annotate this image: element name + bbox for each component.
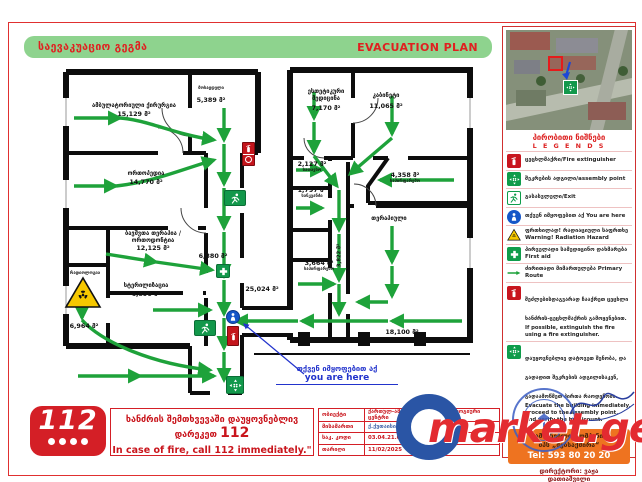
assembly-point-icon [507,345,521,359]
page-title-english: EVACUATION PLAN [357,41,478,54]
instruction-item: შეძლებისდაგვარად ჩააქრეთ ცეცხლი ხანძრის-… [506,282,632,341]
legend-item: შეკრების ადგილი/assembly point [506,170,632,189]
satellite-map [506,30,632,130]
room-label: მოსაცდელი 5,389 მ² [184,86,238,104]
assembly-point-icon [226,376,244,394]
room-label: 6,964 მ² [62,322,106,330]
emergency-service-icons [30,438,106,445]
legend-item: ფრთხილად! რადიაციული საფრთხე Warning! Ra… [506,225,632,244]
map-building [588,102,626,120]
radiation-hazard-icon [64,276,102,310]
fire-call-notice: ხანძრის შემთხვევაში დაუყოვნებლივ დარეკეთ… [110,408,314,456]
plan-info-table: ობიექტი ქართულ-ამერიკული სტომატოლოგიური … [318,408,500,456]
phone-number: Tel: 593 80 20 20 [510,451,628,461]
room-label: ორთოპედია 14,770 მ² [100,171,192,186]
map-arrow [558,60,576,82]
map-building [516,90,546,106]
director-signature-label: დირექტორი: ვაჟა დათიაშვილი [506,467,632,482]
legend-item: ცეცხლმაქრი/Fire extinguisher [506,151,632,170]
room-label: სტერილიზაცია 6,890 მ² [108,283,184,298]
map-building [514,60,540,74]
fire-extinguisher-icon [227,326,239,346]
room-label: 18,100 მ² [378,328,426,336]
room-label: თერაპიული [362,216,416,223]
fire-extinguisher-icon [507,154,521,168]
room-label: ამბულატორიული ქირურგია 15,129 მ² [78,103,190,118]
table-row: მისამართი ქ.ქუთაისი, ი. ახმეტელის №2 [319,421,499,432]
table-row: საკ. კოდი 03.04.21.003 [319,432,499,443]
emergency-number: 112 [220,425,249,441]
corridor-label: 6,880 მ² [192,252,234,260]
you-are-here-icon [226,310,240,324]
exit-icon [224,190,246,206]
map-building [510,32,550,50]
room-label: კაბინეტი 11,065 მ² [360,93,412,110]
header-bar: საევაკუაციო გეგმა EVACUATION PLAN [24,36,492,58]
legend-item: გასასვლელი/Exit [506,188,632,207]
room-label: ბავშვთა თერაპია / ორთოდონტია 12,125 მ² [104,231,202,253]
legend-title: პირობითი ნიშნები L E G E N D S [506,133,632,150]
room-label: 1,797 მ² სანკვანძი [290,186,334,199]
exit-icon [507,191,521,205]
assembly-point-icon [507,172,521,186]
first-aid-icon [507,247,521,261]
map-tree [618,66,628,76]
table-row: თარიღი 11/02/2025 [319,444,499,455]
exit-icon [194,320,216,336]
you-are-here-icon [507,210,521,224]
map-tree [536,76,546,86]
map-marker-assembly [563,80,578,95]
legend-item: ძირითადი მიმართულება Primary Route [506,263,632,282]
signature [566,384,638,426]
you-are-here-note: თქვენ იმყოფებით აქ you are here [276,364,398,385]
legend-item: პირველადი სამედიცინო დახმარება First aid [506,244,632,263]
room-label: ესთეტიკური მედიცინა 7,170 მ² [298,89,354,113]
map-building [556,38,598,53]
corridor-label: 3,822 მ² [337,233,344,277]
fire-extinguisher-icon [242,142,255,166]
room-label: 2,127 მ² სათავსო [290,160,334,173]
table-row: ობიექტი ქართულ-ამერიკული სტომატოლოგიური … [319,409,499,421]
legend-item: თქვენ იმყოფებით აქ You are here [506,207,632,226]
corridor-label: 25,024 მ² [238,285,286,293]
fire-extinguisher-icon [507,286,521,300]
room-label: 4,358 მ² საპირფარეშო [380,171,430,184]
page-title: საევაკუაციო გეგმა [38,41,147,53]
evacuation-plan-page: საევაკუაციო გეგმა EVACUATION PLAN [0,0,642,482]
emergency-112-logo: 112 [30,406,106,456]
first-aid-icon [216,264,230,278]
radiation-hazard-icon [507,228,521,242]
primary-route-icon [507,266,521,280]
